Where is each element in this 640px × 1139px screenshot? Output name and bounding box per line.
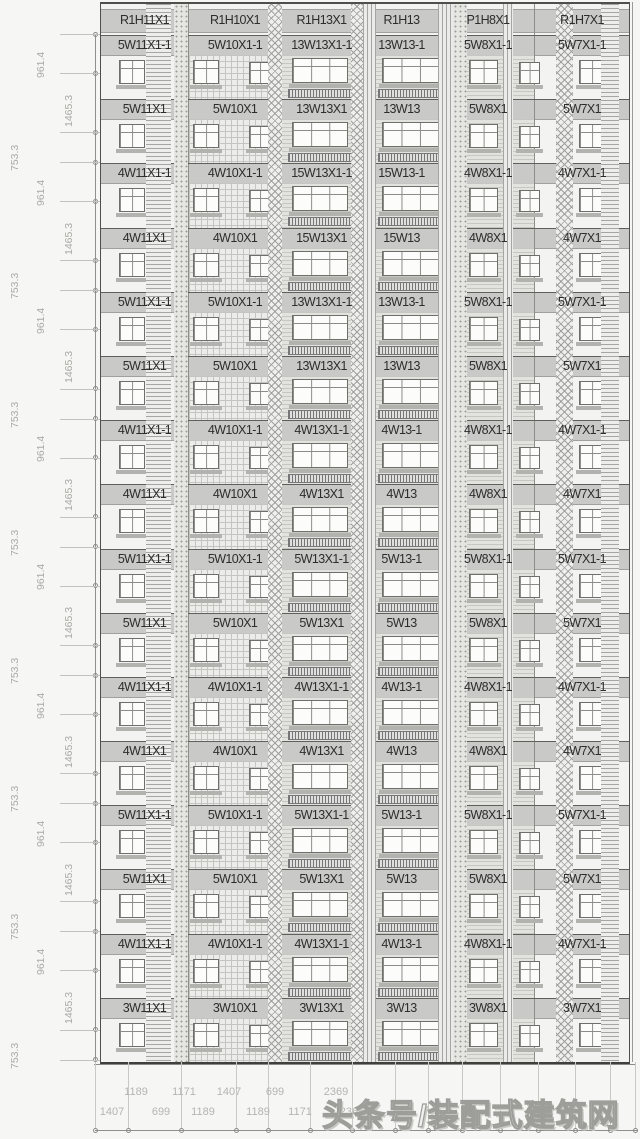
dimension-value: 961.4 <box>36 671 47 719</box>
window <box>193 509 219 533</box>
panel-facade <box>282 954 361 998</box>
balcony-rail <box>378 410 443 419</box>
window <box>292 892 348 917</box>
extension-line <box>60 1030 100 1031</box>
panel-label: 15W13-1 <box>362 164 441 183</box>
balcony-rail <box>288 1052 352 1061</box>
balcony-rail <box>378 795 443 804</box>
window <box>469 124 498 148</box>
balcony-rail <box>378 667 443 676</box>
building-elevation: R1H11X1R1H10X1R1H13X1R1H13P1H8X1R1H7X15W… <box>100 2 630 1064</box>
extension-line <box>60 517 100 518</box>
extension-line <box>310 1062 311 1128</box>
window <box>469 60 498 84</box>
window-sill <box>466 149 501 153</box>
balcony-rail <box>288 603 352 612</box>
panel-label: R1H10X1 <box>189 9 281 31</box>
panel-label: 4W7X1-1 <box>535 164 629 183</box>
window <box>382 636 439 661</box>
panel-label: R1H13 <box>362 9 441 31</box>
dimension-tick <box>179 1128 184 1133</box>
panel-facade <box>282 697 361 741</box>
dimension-value: 1465.3 <box>64 463 75 511</box>
window-sill <box>466 855 501 859</box>
window-sill <box>116 213 148 217</box>
window-sill <box>379 533 442 537</box>
window <box>119 702 145 726</box>
balcony-rail <box>378 603 443 612</box>
window-sill <box>289 726 351 730</box>
window-sill <box>379 84 442 88</box>
dimension-tick <box>93 899 98 904</box>
extension-line <box>60 329 100 330</box>
window-sill <box>116 1048 148 1052</box>
window-sill <box>116 342 148 346</box>
panel-label: 5W11X1 <box>101 614 188 633</box>
window-sill <box>289 662 351 666</box>
panel-label: 4W8X1 <box>442 485 534 504</box>
hatch-strip-stipple <box>174 4 188 1062</box>
panel-label: 5W7X1-1 <box>535 806 629 825</box>
balcony-rail <box>288 731 352 740</box>
dimension-value: 753.3 <box>10 636 21 684</box>
window <box>292 58 348 83</box>
panel-label: 5W13 <box>362 614 441 633</box>
window-sill <box>289 1047 351 1051</box>
balcony-rail <box>378 89 443 98</box>
window <box>382 251 439 276</box>
window <box>469 766 498 790</box>
window <box>382 764 439 789</box>
hatch-strip-horizontal <box>146 4 171 1062</box>
panel-label: 5W7X1 <box>535 100 629 119</box>
panel-label: 5W8X1 <box>442 357 534 376</box>
extension-line <box>60 970 100 971</box>
panel-label: 13W13X1-1 <box>282 293 361 312</box>
panel-cell: 4W13X1 <box>281 485 361 548</box>
window-sill <box>466 534 501 538</box>
window-sill <box>466 1048 501 1052</box>
panel-label: 4W10X1-1 <box>189 421 281 440</box>
panel-cell: 4W13X1-1 <box>281 935 361 998</box>
panel-facade <box>282 569 361 613</box>
panel-facade <box>282 376 361 420</box>
window-sill <box>116 984 148 988</box>
panel-label: 4W13-1 <box>362 678 441 697</box>
panel-label: 5W7X1-1 <box>535 293 629 312</box>
window <box>382 828 439 853</box>
balcony-rail <box>378 988 443 997</box>
dimension-tick <box>93 386 98 391</box>
panel-facade <box>282 889 361 933</box>
dimension-value: 961.4 <box>36 414 47 462</box>
dimension-value: 1465.3 <box>64 591 75 639</box>
panel-label: 4W13 <box>362 485 441 504</box>
window-sill <box>289 790 351 794</box>
panel-label: 4W13X1 <box>282 742 361 761</box>
dimension-value: 1189 <box>124 1086 148 1098</box>
window <box>469 959 498 983</box>
panel-cell: 4W13X1-1 <box>281 421 361 484</box>
hatch-strip-cross <box>556 4 573 1062</box>
window <box>119 574 145 598</box>
panel-cell: 5W13X1-1 <box>281 806 361 869</box>
balcony-rail <box>288 89 352 98</box>
window <box>119 509 145 533</box>
window-sill <box>379 854 442 858</box>
panel-label: 4W8X1 <box>442 742 534 761</box>
panel-label: 4W10X1-1 <box>189 678 281 697</box>
panel-label: R1H7X1 <box>535 9 629 31</box>
panel-label: 5W10X1 <box>189 100 281 119</box>
window <box>292 700 348 725</box>
panel-cell: 13W13X1-1 <box>281 36 361 99</box>
balcony-rail <box>378 538 443 547</box>
window <box>292 572 348 597</box>
panel-label: 5W13-1 <box>362 550 441 569</box>
window <box>119 1023 145 1047</box>
balcony-rail <box>378 217 443 226</box>
panel-label: 13W13-1 <box>362 293 441 312</box>
ground-line <box>94 1064 636 1065</box>
panel-label: 4W11X1 <box>101 742 188 761</box>
window <box>193 1023 219 1047</box>
panel-label: 4W10X1 <box>189 229 281 248</box>
panel-label: 4W10X1 <box>189 485 281 504</box>
extension-line <box>60 419 100 420</box>
window-sill <box>466 213 501 217</box>
panel-label: 4W11X1-1 <box>101 421 188 440</box>
panel-label: 5W8X1 <box>442 100 534 119</box>
window-sill <box>466 342 501 346</box>
panel-label: 4W11X1-1 <box>101 678 188 697</box>
extension-line <box>268 1062 269 1128</box>
panel-label: 4W7X1 <box>535 485 629 504</box>
window <box>382 122 439 147</box>
dimension-value: 753.3 <box>10 892 21 940</box>
dimension-tick <box>93 160 98 165</box>
window <box>292 315 348 340</box>
panel-label: 3W8X1 <box>442 999 534 1018</box>
window-sill <box>289 277 351 281</box>
window <box>382 379 439 404</box>
dimension-value: 753.3 <box>10 380 21 428</box>
panel-label: 3W13X1 <box>282 999 361 1018</box>
dimension-tick <box>93 32 98 37</box>
extension-line <box>60 931 100 932</box>
window-sill <box>289 148 351 152</box>
extension-line <box>635 1062 636 1128</box>
window <box>119 894 145 918</box>
dimension-tick <box>234 1128 239 1133</box>
dimension-tick <box>93 455 98 460</box>
window <box>469 1023 498 1047</box>
window <box>193 702 219 726</box>
panel-facade <box>282 248 361 292</box>
panel-label: 3W7X1 <box>535 999 629 1018</box>
window-sill <box>466 919 501 923</box>
elevation-drawing: R1H11X1R1H10X1R1H13X1R1H13P1H8X1R1H7X15W… <box>0 0 640 1139</box>
window-sill <box>379 1047 442 1051</box>
window <box>469 317 498 341</box>
window-sill <box>190 342 222 346</box>
window-sill <box>379 148 442 152</box>
window <box>292 379 348 404</box>
window-sill <box>190 149 222 153</box>
extension-line <box>60 586 100 587</box>
hatch-strip-vertical <box>438 4 453 1062</box>
window-sill <box>289 469 351 473</box>
window-sill <box>379 405 442 409</box>
window-sill <box>289 212 351 216</box>
window-sill <box>116 855 148 859</box>
dimension-value: 1407 <box>217 1086 241 1098</box>
panel-label: 13W13 <box>362 357 441 376</box>
balcony-rail <box>288 217 352 226</box>
panel-label: 5W10X1-1 <box>189 293 281 312</box>
panel-label: 5W10X1 <box>189 357 281 376</box>
panel-label: 5W11X1-1 <box>101 36 188 55</box>
balcony-rail <box>378 153 443 162</box>
window <box>193 317 219 341</box>
window <box>193 830 219 854</box>
panel-label: 4W7X1 <box>535 229 629 248</box>
extension-line <box>236 1062 237 1128</box>
dimension-line <box>95 34 96 1060</box>
panel-label: 5W8X1-1 <box>442 293 534 312</box>
window-sill <box>116 149 148 153</box>
dimension-tick <box>93 643 98 648</box>
window <box>382 507 439 532</box>
panel-label: 13W13X1 <box>282 100 361 119</box>
roof-panel-cell: R1H11X1 <box>101 4 188 35</box>
dimension-value: 961.4 <box>36 30 47 78</box>
window <box>382 186 439 211</box>
window <box>193 124 219 148</box>
panel-label: 4W13X1-1 <box>282 935 361 954</box>
panel-label: 5W7X1-1 <box>535 550 629 569</box>
panel-label: 5W7X1 <box>535 870 629 889</box>
panel-facade <box>282 183 361 227</box>
panel-label: 5W7X1-1 <box>535 36 629 55</box>
window <box>382 1021 439 1046</box>
panel-label: 4W10X1-1 <box>189 935 281 954</box>
panel-cell: 13W13X1 <box>281 357 361 420</box>
panel-label: 5W11X1-1 <box>101 806 188 825</box>
dimension-value: 1465.3 <box>64 79 75 127</box>
balcony-rail <box>378 1052 443 1061</box>
window <box>119 959 145 983</box>
window <box>292 122 348 147</box>
right-edge-line <box>632 2 633 1062</box>
extension-line <box>60 1060 100 1061</box>
panel-label: 4W8X1-1 <box>442 164 534 183</box>
window-sill <box>190 727 222 731</box>
extension-line <box>60 714 100 715</box>
balcony-rail <box>288 538 352 547</box>
balcony-rail <box>288 474 352 483</box>
window <box>119 830 145 854</box>
window-sill <box>190 534 222 538</box>
panel-label: P1H8X1 <box>442 9 534 31</box>
window-sill <box>379 341 442 345</box>
window-sill <box>289 533 351 537</box>
panel-label: 5W13X1 <box>282 870 361 889</box>
dimension-value: 1189 <box>246 1106 270 1118</box>
window <box>193 381 219 405</box>
window-sill <box>379 277 442 281</box>
panel-label: 3W11X1 <box>101 999 188 1018</box>
dimension-tick <box>93 801 98 806</box>
balcony-rail <box>288 795 352 804</box>
panel-facade <box>282 55 361 99</box>
panel-label: 13W13 <box>362 100 441 119</box>
panel-facade <box>282 440 361 484</box>
dimension-value: 961.4 <box>36 542 47 590</box>
window <box>119 381 145 405</box>
panel-cell: 5W13X1 <box>281 870 361 933</box>
window <box>469 445 498 469</box>
window <box>193 959 219 983</box>
extension-line <box>60 389 100 390</box>
extension-line <box>60 803 100 804</box>
dimension-tick <box>93 1128 98 1133</box>
panel-label: 4W13-1 <box>362 935 441 954</box>
dimension-value: 753.3 <box>10 764 21 812</box>
extension-line <box>60 675 100 676</box>
dimension-value: 1465.3 <box>64 720 75 768</box>
window-sill <box>190 406 222 410</box>
roof-panel-cell: R1H10X1 <box>188 4 281 35</box>
panel-label: 4W8X1-1 <box>442 935 534 954</box>
window-sill <box>466 984 501 988</box>
panel-facade <box>282 761 361 805</box>
panel-label: 4W7X1 <box>535 742 629 761</box>
window <box>382 443 439 468</box>
panel-label: 15W13X1-1 <box>282 164 361 183</box>
panel-label: 5W11X1 <box>101 100 188 119</box>
panel-label: 5W11X1 <box>101 870 188 889</box>
dimension-value: 961.4 <box>36 927 47 975</box>
balcony-rail <box>288 859 352 868</box>
dimension-tick <box>266 1128 271 1133</box>
window <box>292 828 348 853</box>
window-sill <box>466 663 501 667</box>
panel-label: 5W10X1-1 <box>189 806 281 825</box>
dimension-tick <box>93 258 98 263</box>
dimension-value: 1465.3 <box>64 848 75 896</box>
window <box>469 381 498 405</box>
window <box>469 702 498 726</box>
balcony-rail <box>288 410 352 419</box>
balcony-rail <box>288 282 352 291</box>
panel-cell: 15W13X1-1 <box>281 164 361 227</box>
panel-label: 4W13X1 <box>282 485 361 504</box>
dimension-tick <box>93 771 98 776</box>
panel-label: 4W11X1-1 <box>101 164 188 183</box>
window <box>469 253 498 277</box>
panel-cell: 5W13X1 <box>281 614 361 677</box>
window-sill <box>116 919 148 923</box>
dimension-tick <box>93 929 98 934</box>
window <box>292 957 348 982</box>
panel-label: 5W8X1-1 <box>442 806 534 825</box>
window-sill <box>466 278 501 282</box>
window <box>119 317 145 341</box>
panel-label: 4W13X1-1 <box>282 421 361 440</box>
hatch-strip-cross <box>351 4 363 1062</box>
panel-facade <box>282 504 361 548</box>
window <box>193 188 219 212</box>
dimension-tick <box>93 712 98 717</box>
dimension-tick <box>93 1057 98 1062</box>
balcony-rail <box>378 346 443 355</box>
panel-cell: 4W13X1-1 <box>281 678 361 741</box>
window-sill <box>289 854 351 858</box>
panel-facade <box>282 312 361 356</box>
watermark: 头条号/装配式建筑网 <box>322 1090 620 1135</box>
panel-cell: 13W13X1-1 <box>281 293 361 356</box>
balcony-rail <box>288 667 352 676</box>
window <box>193 894 219 918</box>
dimension-value: 961.4 <box>36 158 47 206</box>
dimension-tick <box>93 583 98 588</box>
panel-label: 5W8X1 <box>442 614 534 633</box>
window <box>292 764 348 789</box>
window <box>382 58 439 83</box>
panel-cell: 13W13X1 <box>281 100 361 163</box>
roof-panel-cell: R1H7X1 <box>534 4 629 35</box>
hatch-strip-stipple <box>453 4 467 1062</box>
window-sill <box>466 727 501 731</box>
window <box>193 253 219 277</box>
balcony-rail <box>378 923 443 932</box>
panel-label: 5W10X1 <box>189 870 281 889</box>
dimension-tick <box>93 514 98 519</box>
panel-label: 4W13 <box>362 742 441 761</box>
balcony-rail <box>288 988 352 997</box>
extension-line <box>60 201 100 202</box>
window-sill <box>190 855 222 859</box>
window-sill <box>289 405 351 409</box>
window <box>119 124 145 148</box>
window <box>119 638 145 662</box>
dimension-tick <box>126 1128 131 1133</box>
dimension-tick <box>93 288 98 293</box>
window-sill <box>116 406 148 410</box>
panel-cell: 3W13X1 <box>281 999 361 1062</box>
extension-line <box>60 842 100 843</box>
panel-label: 4W10X1-1 <box>189 164 281 183</box>
window-sill <box>190 470 222 474</box>
window-sill <box>190 919 222 923</box>
extension-line <box>181 1062 182 1128</box>
dimension-value: 1407 <box>100 1106 124 1118</box>
window <box>382 700 439 725</box>
dimension-tick <box>93 840 98 845</box>
window-sill <box>190 278 222 282</box>
balcony-rail <box>288 346 352 355</box>
window-sill <box>289 598 351 602</box>
window <box>292 507 348 532</box>
window-sill <box>289 983 351 987</box>
panel-label: R1H13X1 <box>282 9 361 31</box>
window <box>382 957 439 982</box>
window <box>469 638 498 662</box>
roof-panel-cell: R1H13X1 <box>281 4 361 35</box>
window <box>469 894 498 918</box>
extension-line <box>60 773 100 774</box>
